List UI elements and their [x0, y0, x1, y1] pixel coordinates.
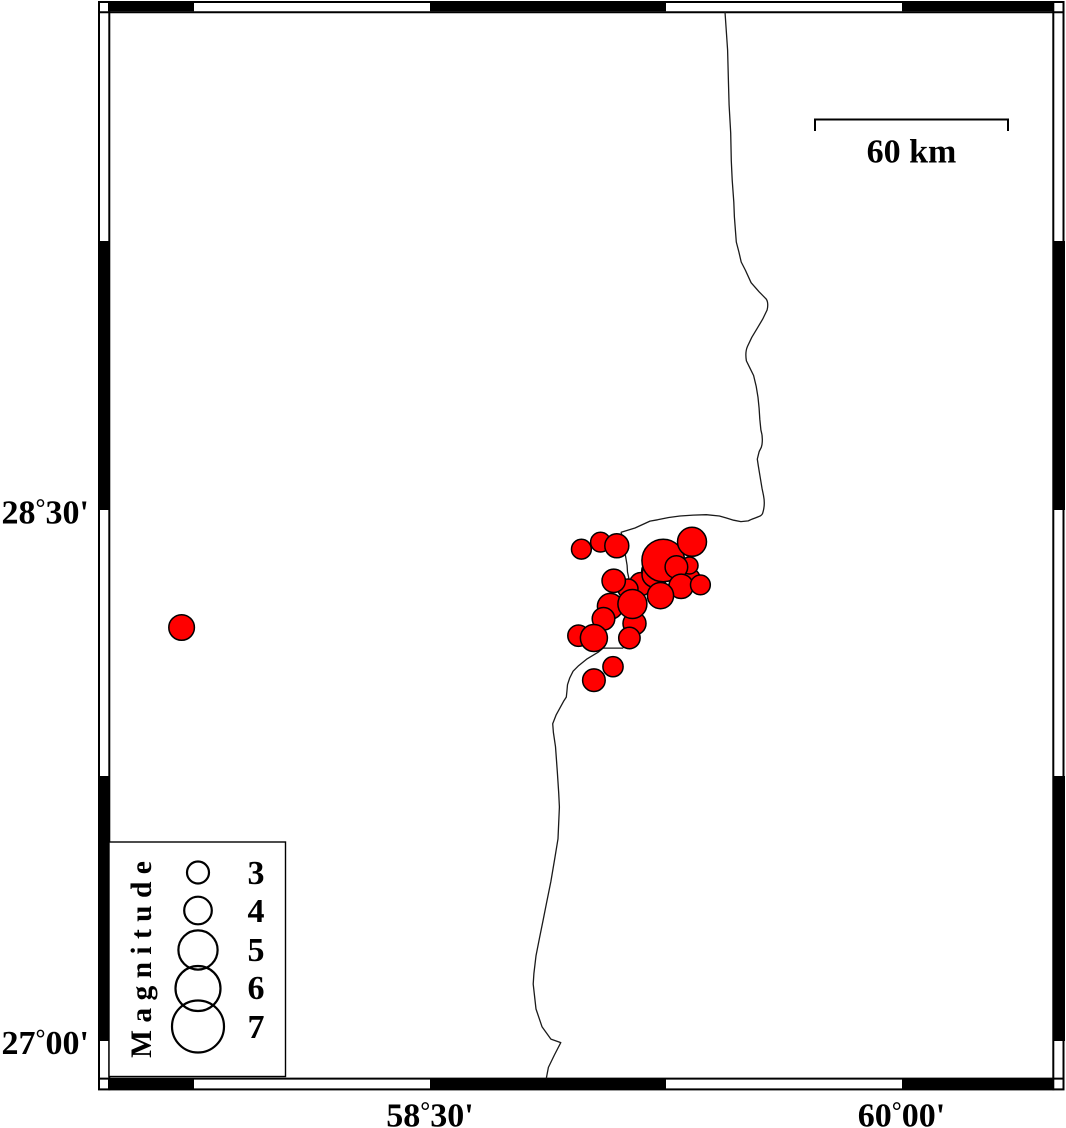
- svg-text:58°30': 58°30': [386, 1098, 473, 1128]
- svg-text:6: 6: [248, 970, 265, 1007]
- svg-text:27°00': 27°00': [2, 1025, 89, 1062]
- svg-text:60°00': 60°00': [858, 1098, 945, 1128]
- svg-text:M a g n i t u d e: M a g n i t u d e: [126, 861, 158, 1058]
- svg-text:5: 5: [248, 932, 265, 969]
- svg-text:3: 3: [248, 855, 265, 892]
- svg-text:60 km: 60 km: [867, 134, 957, 171]
- svg-text:28°30': 28°30': [2, 494, 89, 531]
- svg-text:4: 4: [248, 893, 265, 930]
- svg-text:7: 7: [248, 1009, 265, 1046]
